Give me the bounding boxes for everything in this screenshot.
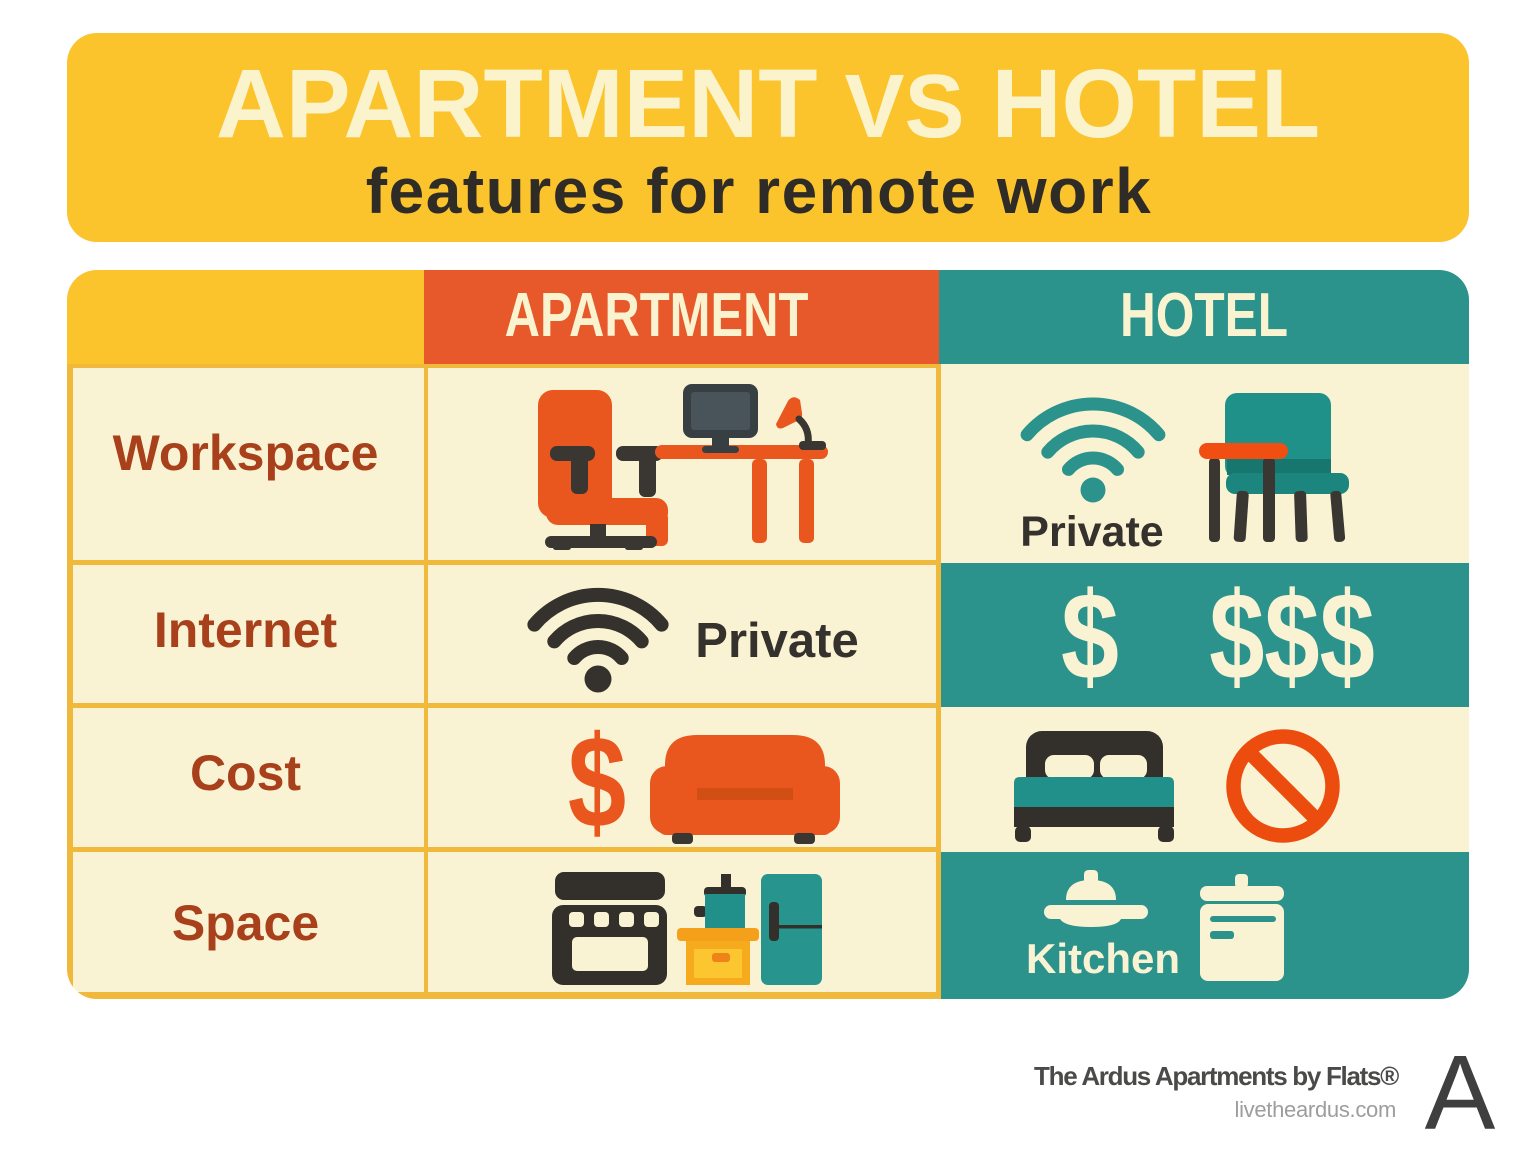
svg-text:Private: Private [695,614,858,668]
svg-text:$$$: $$$ [1209,566,1374,705]
svg-text:Kitchen: Kitchen [1026,935,1180,982]
svg-text:Private: Private [1020,508,1163,556]
svg-text:$: $ [1061,567,1119,706]
svg-text:$: $ [568,710,626,856]
